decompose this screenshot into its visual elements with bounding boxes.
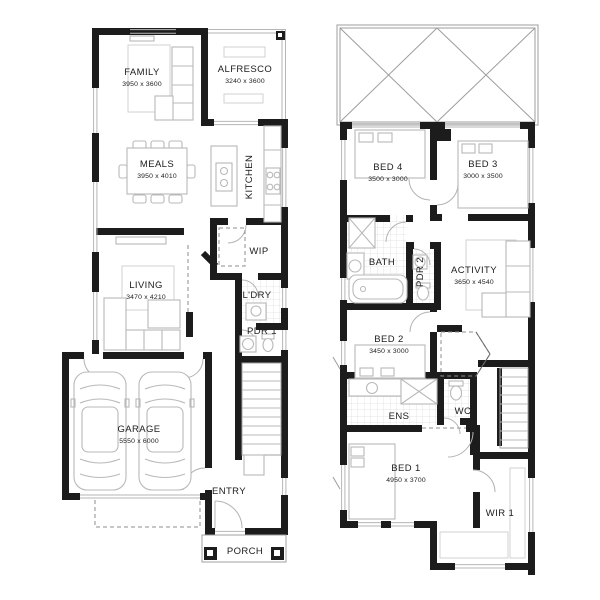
ground-floor-plan: FAMILY 3950 x 3600 ALFRESCO 3240 x 3600 … xyxy=(62,28,288,562)
room-dims-bed3: 3000 x 3500 xyxy=(463,173,503,180)
meals-furniture xyxy=(119,141,195,203)
room-dims-bed4: 3500 x 3000 xyxy=(368,176,408,183)
first-floor-plan: BED 4 3500 x 3000 BED 3 3000 x 3500 BATH… xyxy=(333,25,538,575)
room-label-bed4: BED 4 xyxy=(373,162,402,173)
room-dims-meals: 3950 x 4010 xyxy=(137,173,177,180)
room-label-entry: ENTRY xyxy=(212,486,246,497)
room-label-garage: GARAGE xyxy=(117,424,160,435)
room-label-wir1: WIR 1 xyxy=(486,508,514,519)
room-dims-garage: 5550 x 6000 xyxy=(119,438,159,445)
room-label-family: FAMILY xyxy=(124,67,160,78)
stair-void xyxy=(441,332,490,376)
room-dims-alfresco: 3240 x 3600 xyxy=(225,78,265,85)
room-label-pdr2: PDR 2 xyxy=(415,257,426,287)
room-label-meals: MEALS xyxy=(140,159,174,170)
room-label-ldry: L'DRY xyxy=(243,290,272,301)
room-label-living: LIVING xyxy=(129,280,163,291)
ldry-fixtures xyxy=(246,303,266,320)
driveway xyxy=(95,500,200,527)
roof-outline xyxy=(337,25,538,125)
family-furniture xyxy=(128,36,193,120)
room-label-bed3: BED 3 xyxy=(468,159,497,170)
floor-plan-svg: FAMILY 3950 x 3600 ALFRESCO 3240 x 3600 … xyxy=(0,0,600,600)
room-dims-living: 3470 x 4210 xyxy=(126,294,166,301)
room-label-kitchen: KITCHEN xyxy=(244,155,255,200)
room-label-activity: ACTIVITY xyxy=(451,265,497,276)
room-label-bath: BATH xyxy=(369,257,395,268)
room-label-alfresco: ALFRESCO xyxy=(218,64,272,75)
room-label-pdr1: PDR 1 xyxy=(247,326,277,337)
wc-fixtures xyxy=(449,381,463,400)
room-label-wip: WIP xyxy=(249,246,268,257)
room-dims-family: 3950 x 3600 xyxy=(122,81,162,88)
room-label-wc: WC xyxy=(455,406,472,417)
wip-shelves xyxy=(219,228,245,266)
room-dims-activity: 3650 x 4540 xyxy=(454,279,494,286)
room-label-ens: ENS xyxy=(389,411,410,422)
room-label-bed2: BED 2 xyxy=(374,334,403,345)
room-dims-bed1: 4950 x 3700 xyxy=(386,477,426,484)
floor-plan-page: FAMILY 3950 x 3600 ALFRESCO 3240 x 3600 … xyxy=(0,0,600,600)
room-dims-bed2: 3450 x 3000 xyxy=(369,348,409,355)
first-stairs xyxy=(500,368,528,448)
room-label-bed1: BED 1 xyxy=(391,463,420,474)
room-label-porch: PORCH xyxy=(227,546,263,557)
ground-stairs xyxy=(242,363,281,475)
lower-roof-ticks xyxy=(333,357,340,489)
